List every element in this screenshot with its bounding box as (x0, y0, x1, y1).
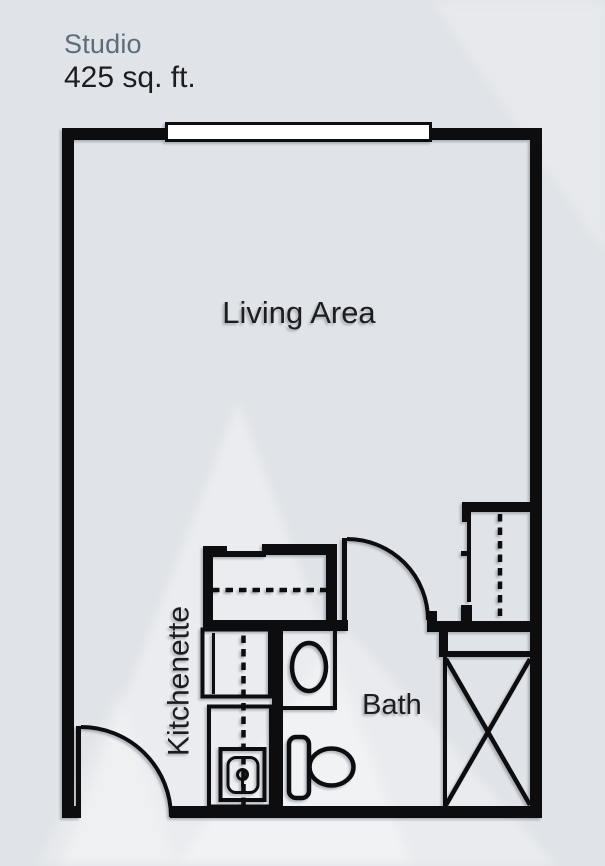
toilet (289, 737, 354, 798)
kitchenette-closet (203, 544, 337, 624)
closet-top-wall-right (262, 544, 337, 555)
bath-door-leaf (342, 538, 347, 621)
vanity-sink (292, 643, 326, 691)
floor-plan: Living Area Kitchenette Bath (0, 0, 605, 866)
entry-door (76, 726, 171, 818)
bath-label: Bath (362, 689, 422, 721)
floor-plan-page: Studio 425 sq. ft. (0, 0, 605, 866)
right-wall (530, 128, 542, 818)
closet-right-wall (326, 547, 337, 624)
entry-door-leaf (76, 726, 81, 818)
shelf-bottom-wall (439, 651, 542, 657)
x-box-left-edge (443, 657, 447, 806)
bath-door (342, 538, 428, 621)
wardrobe-door-edge-lower (467, 556, 471, 602)
wardrobe-door-edge-upper (467, 520, 471, 554)
closet-left-wall (203, 547, 213, 624)
wardrobe-left-stub-top (462, 502, 471, 522)
bath-vanity (281, 628, 335, 708)
interior-wall-right-segment (427, 621, 542, 632)
exterior-walls (62, 128, 542, 818)
closet-top-wall-left (203, 546, 227, 557)
bath-door-swing-arc (347, 539, 428, 620)
left-wall (62, 128, 74, 818)
closet-shelf (439, 632, 542, 657)
wardrobe-closet (461, 502, 542, 621)
top-wall-right (429, 128, 542, 140)
kitchenette-label: Kitchenette (163, 606, 196, 756)
toilet-tank (289, 737, 309, 798)
closet-top-opening (225, 551, 266, 557)
living-area-label: Living Area (222, 295, 376, 330)
wardrobe-door-hinge-tick (461, 551, 471, 556)
refrigerator (203, 630, 271, 697)
wardrobe-top-wall (462, 502, 542, 512)
shower-x-box (443, 657, 530, 806)
wardrobe-left-stub-bottom (461, 605, 472, 621)
window (167, 124, 431, 141)
entry-door-swing-arc (81, 727, 171, 817)
toilet-bowl (310, 749, 354, 786)
top-wall-left (62, 128, 167, 140)
